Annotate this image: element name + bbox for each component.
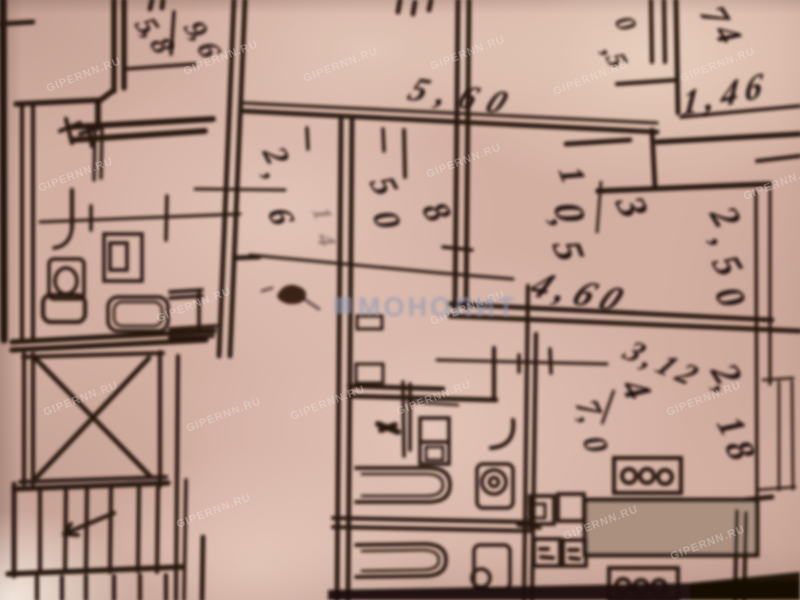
svg-text:0: 0 <box>706 282 755 313</box>
svg-text:5: 5 <box>543 236 594 264</box>
svg-text:1: 1 <box>306 205 337 223</box>
svg-text:2: 2 <box>700 200 749 234</box>
svg-text:8: 8 <box>414 196 460 228</box>
svg-text:GIPERNN.RU: GIPERNN.RU <box>552 58 630 98</box>
svg-text:1: 1 <box>550 163 592 188</box>
svg-text:4: 4 <box>611 373 659 405</box>
svg-text:0: 0 <box>608 12 643 35</box>
svg-text:GIPERNN.RU: GIPERNN.RU <box>302 45 380 85</box>
svg-text:GIPERNN.RU: GIPERNN.RU <box>425 141 503 181</box>
svg-text:,: , <box>703 229 742 250</box>
svg-text:2: 2 <box>254 141 297 169</box>
svg-text:GIPERNN.RU: GIPERNN.RU <box>185 395 263 435</box>
svg-text:3: 3 <box>606 190 658 223</box>
svg-text:МОНОЛИТ: МОНОЛИТ <box>358 292 517 322</box>
svg-text:6: 6 <box>259 203 302 229</box>
svg-text:5,60: 5,60 <box>403 70 526 123</box>
svg-text:0: 0 <box>364 206 409 233</box>
svg-text:0: 0 <box>575 432 616 457</box>
svg-text:GIPERNN.RU: GIPERNN.RU <box>37 155 115 195</box>
svg-text:4: 4 <box>310 230 341 249</box>
svg-text:4,60: 4,60 <box>522 265 638 322</box>
svg-text:5: 5 <box>361 171 406 200</box>
svg-text:5: 5 <box>703 250 752 282</box>
svg-text:GIPERNN.RU: GIPERNN.RU <box>289 383 367 423</box>
